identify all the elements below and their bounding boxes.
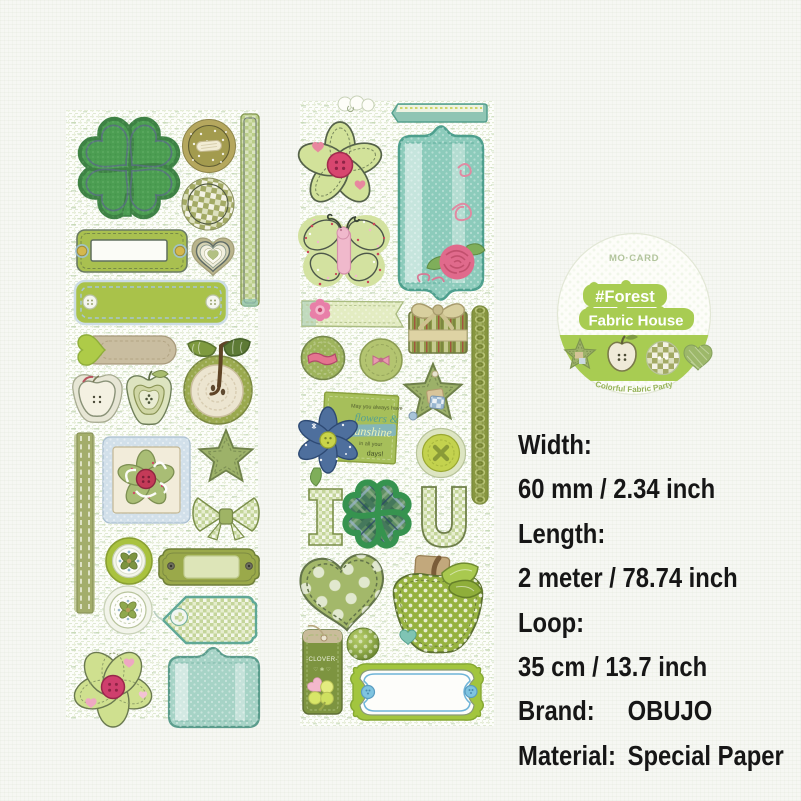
svg-text:in all your: in all your: [359, 441, 383, 448]
svg-text:-CLOVER-: -CLOVER-: [306, 657, 338, 663]
svg-text:Fabric House: Fabric House: [588, 313, 683, 330]
svg-text:MO·CARD: MO·CARD: [609, 253, 659, 264]
svg-text:days!: days!: [366, 450, 383, 458]
svg-text:#Forest: #Forest: [595, 288, 655, 306]
svg-text:♡ ❀ ♡: ♡ ❀ ♡: [313, 666, 331, 673]
